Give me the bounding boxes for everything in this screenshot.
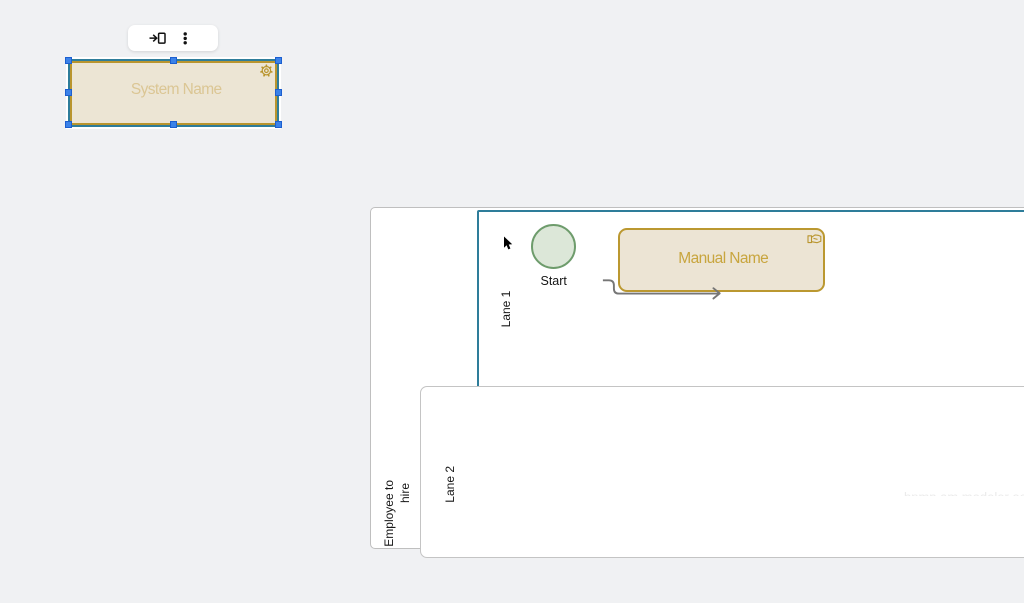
svg-text:bpmn am modeler oem canvas: bpmn am modeler oem canvas <box>904 490 1024 497</box>
